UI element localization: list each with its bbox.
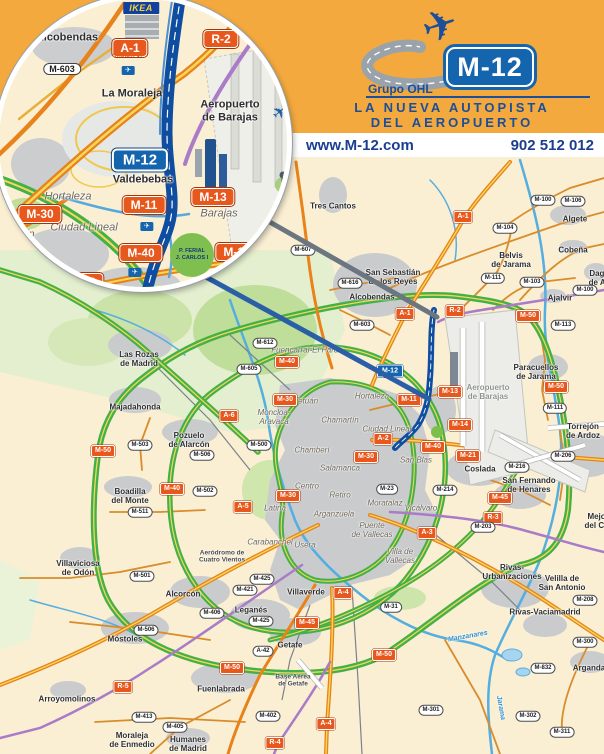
sign-m-603: M-603 (349, 320, 374, 331)
label-usera: Usera (294, 540, 315, 549)
sign-m-506: M-506 (133, 625, 158, 636)
label-paracuellos-de-jarama: Paracuellos de Jarama (514, 363, 559, 381)
sign-m-500: M-500 (246, 440, 271, 451)
tagline-line2: DEL AEROPUERTO (300, 115, 604, 130)
sign-m-311: M-311 (550, 727, 575, 738)
sign-m-50: M-50 (544, 381, 568, 393)
sign-a-4: A-4 (333, 587, 352, 599)
sign-m-425: M-425 (249, 574, 274, 585)
exit-marker-salida-8: SALIDA 8✈ (121, 255, 148, 279)
sign-m-502: M-502 (192, 486, 217, 497)
sign-m-511: M-511 (128, 507, 153, 518)
sign-m-113: M-113 (551, 320, 576, 331)
exit-label: SALIDA 7 (133, 209, 160, 215)
label-aeródromo-de-cuatro-vientos: Aeródromo de Cuatro Vientos (199, 550, 245, 565)
sign-m-12: M-12 (112, 149, 168, 172)
sign-m-607: M-607 (290, 245, 315, 256)
sign-m-45: M-45 (295, 617, 319, 629)
sign-m-206: M-206 (550, 451, 575, 462)
sign-m-405: M-405 (162, 722, 187, 733)
exit-label: SALIDA 17 (113, 53, 144, 59)
exit-pictogram-icon: ✈ (128, 268, 141, 277)
sign-a-3: A-3 (417, 527, 436, 539)
label-hortaleza: Hortaleza (44, 191, 91, 204)
label-pozuelo-de-alarcón: Pozuelo de Alarcón (168, 431, 209, 449)
sign-m-612: M-612 (252, 338, 277, 349)
label-valdebebas: Valdebebas (113, 174, 174, 187)
sign-r-5: R-5 (113, 681, 132, 693)
sign-m-605: M-605 (236, 364, 261, 375)
label-majadahonda: Majadahonda (109, 402, 160, 411)
sign-m-30: M-30 (276, 490, 300, 502)
sign-m-106: M-106 (560, 196, 585, 207)
m12-shield: M-12 (446, 47, 534, 87)
label-torrejón-de-ardoz: Torrejón de Ardoz (566, 422, 600, 440)
label-jarama: Jarama (494, 695, 506, 721)
label-villaviciosa-de-odón: Villaviciosa de Odón (56, 559, 99, 577)
sign-m-503: M-503 (127, 440, 152, 451)
label-moratalaz: Moratalaz (367, 498, 402, 507)
ikea-building (125, 15, 159, 39)
sign-m-501: M-501 (129, 571, 154, 582)
sign-m-421: M-421 (232, 585, 257, 596)
sign-m-31: M-31 (380, 602, 402, 613)
sign-a-1: A-1 (453, 211, 472, 223)
label-velilla-de-san-antonio: Velilla de San Antonio (539, 574, 586, 592)
sign-a-1: A-1 (395, 308, 414, 320)
label-chamartín: Chamartín (0, 229, 35, 242)
feria-juan-carlos-badge: P. FERIAL J. CARLOS I (170, 233, 214, 277)
label-las-rozas-de-madrid: Las Rozas de Madrid (119, 350, 159, 368)
sign-m-12: M-12 (377, 365, 403, 378)
magnifier-inset: IKEA P. FERIAL J. CARLOS I ✈ AlcobendasL… (0, 0, 292, 292)
label-san-sebastián-de-los-reyes: San Sebastián de los Reyes (366, 268, 421, 286)
sign-r-2: R-2 (203, 30, 238, 48)
label-humanes-de-madrid: Humanes de Madrid (169, 735, 207, 753)
sign-a-5: A-5 (233, 501, 252, 513)
label-moncloa-aravaca: Moncloa- Aravaca (258, 408, 291, 426)
sign-a-4: A-4 (316, 718, 335, 730)
label-móstoles: Móstoles (108, 634, 143, 643)
label-latina: Latina (264, 503, 286, 512)
sign-m-214: M-214 (432, 485, 457, 496)
label-leganés: Leganés (235, 605, 267, 614)
m12-map-poster: Fuencarral-El PardoTetuánHortalezaChamar… (0, 0, 604, 754)
sign-m-100: M-100 (530, 195, 555, 206)
website-text: www.M-12.com (306, 137, 414, 154)
label-alcobendas: Alcobendas (349, 292, 394, 301)
label-coslada: Coslada (464, 464, 495, 473)
label-retiro: Retiro (329, 490, 350, 499)
label-chamberí: Chamberí (294, 445, 329, 454)
sign-m-50: M-50 (91, 445, 115, 457)
sign-m-40: M-40 (421, 441, 445, 453)
label-rivas-urbanizaciones: Rivas- Urbanizaciones (482, 563, 541, 581)
ikea-store-sign: IKEA (123, 2, 159, 14)
sign-m-14: M-14 (448, 419, 472, 431)
control-tower-icon (280, 172, 287, 179)
label-getafe: Getafe (278, 640, 303, 649)
sign-m-30: M-30 (18, 205, 61, 223)
sign-m-45: M-45 (488, 492, 512, 504)
sign-m-832: M-832 (530, 663, 555, 674)
sign-a-6: A-6 (219, 410, 238, 422)
sign-m-30: M-30 (273, 394, 297, 406)
label-aeropuerto-de-barajas: Aeropuerto de Barajas (466, 383, 509, 401)
sign-a-2: A-2 (373, 433, 392, 445)
label-algete: Algete (563, 214, 587, 223)
label-chamartín: Chamartín (321, 415, 358, 424)
label-arganda: Arganda (573, 663, 604, 672)
sign-m-50: M-50 (220, 662, 244, 674)
exit-pictogram-icon: ✈ (122, 66, 135, 75)
exit-marker-salida-17: SALIDA 17✈ (113, 53, 144, 77)
label-belvis-de-jarama: Belvis de Jarama (491, 251, 531, 269)
label-salamanca: Salamanca (320, 463, 360, 472)
label-arroyomolinos: Arroyomolinos (39, 694, 96, 703)
sign-a-42: A-42 (252, 646, 273, 657)
sign-m-104: M-104 (492, 223, 517, 234)
label-manzanares: Manzanares (448, 630, 489, 645)
sign-m-616: M-616 (337, 278, 362, 289)
label-fuencarral-el-pardo: Fuencarral-El Pardo (271, 345, 343, 354)
label-alcorcón: Alcorcón (166, 589, 201, 598)
label-rivas-vaciamadrid: Rivas-Vaciamadrid (509, 607, 580, 616)
tagline-line1: LA NUEVA AUTOPISTA (300, 100, 604, 115)
sign-m-11: M-11 (397, 394, 421, 406)
sign-m-40: M-40 (275, 356, 299, 368)
label-boadilla-del-monte: Boadilla del Monte (111, 487, 148, 505)
label-hortaleza: Hortaleza (355, 391, 389, 400)
sign-m-50: M-50 (372, 649, 396, 661)
sign-m-301: M-301 (418, 705, 443, 716)
sign-r-4: R-4 (265, 737, 284, 749)
brand-group-label: Grupo OHL (368, 82, 433, 96)
label-tetuán: Tetuán (294, 396, 318, 405)
label-barajas: Barajas (200, 208, 237, 221)
sign-r-2: R-2 (445, 305, 464, 317)
label-base-aérea-de-getafe: Base Aérea de Getafe (275, 674, 310, 689)
sign-m-208: M-208 (572, 595, 597, 606)
sign-m-406: M-406 (199, 608, 224, 619)
exit-label: SALIDA 8 (121, 255, 148, 261)
label-la-moraleja: La Moraleja (102, 88, 163, 101)
exit-pictogram-icon: ✈ (140, 222, 153, 231)
sign-m-13: M-13 (438, 386, 462, 398)
sign-m-111: M-111 (543, 403, 567, 414)
sign-m-21: M-21 (456, 450, 480, 462)
sign-m-425: M-425 (248, 616, 273, 627)
brand-divider (366, 96, 590, 98)
sign-m-50: M-50 (516, 310, 540, 322)
label-ciudad-lineal: Ciudad Lineal (50, 222, 117, 235)
sign-m-506: M-506 (189, 450, 214, 461)
label-mejorada-del-campo: Mejorada del Campo (585, 512, 604, 530)
label-cobeña: Cobeña (558, 245, 587, 254)
label-carabanchel: Carabanchel (247, 537, 292, 546)
sign-m-103: M-103 (519, 277, 544, 288)
sign-m-111: M-111 (481, 273, 505, 284)
label-villaverde: Villaverde (287, 587, 325, 596)
sign-m-23: M-23 (376, 484, 398, 495)
phone-number: 902 512 012 (511, 137, 594, 154)
label-vicálvaro: Vicálvaro (405, 503, 438, 512)
label-fuenlabrada: Fuenlabrada (197, 684, 245, 693)
exit-marker-salida-7: SALIDA 7✈ (133, 209, 160, 233)
label-arganzuela: Arganzuela (314, 509, 354, 518)
sign-m-603: M-603 (43, 63, 81, 75)
sign-m-40: M-40 (160, 483, 184, 495)
label-san-blas: San Blas (400, 455, 432, 464)
sign-m-413: M-413 (131, 712, 156, 723)
label-alcobendas: Alcobendas (36, 32, 98, 45)
sign-m-300: M-300 (572, 637, 597, 648)
label-villa-de-vallecas: Villa de Vallecas (385, 547, 415, 565)
label-aeropuerto-de-barajas: Aeropuerto de Barajas (200, 98, 259, 123)
sign-m-402: M-402 (255, 711, 280, 722)
label-ajalvir: Ajalvir (548, 293, 572, 302)
sign-m-30: M-30 (354, 451, 378, 463)
sign-m-13: M-13 (191, 188, 234, 206)
label-puente-de-vallecas: Puente de Vallecas (351, 521, 392, 539)
label-tres-cantos: Tres Cantos (310, 201, 356, 210)
sign-m-14: M-14 (215, 243, 258, 261)
sign-m-302: M-302 (515, 711, 540, 722)
sign-m-216: M-216 (504, 462, 529, 473)
label-moraleja-de-enmedio: Moraleja de Enmedio (109, 731, 154, 749)
sign-m-203: M-203 (470, 522, 495, 533)
sign-m-100: M-100 (572, 285, 597, 296)
